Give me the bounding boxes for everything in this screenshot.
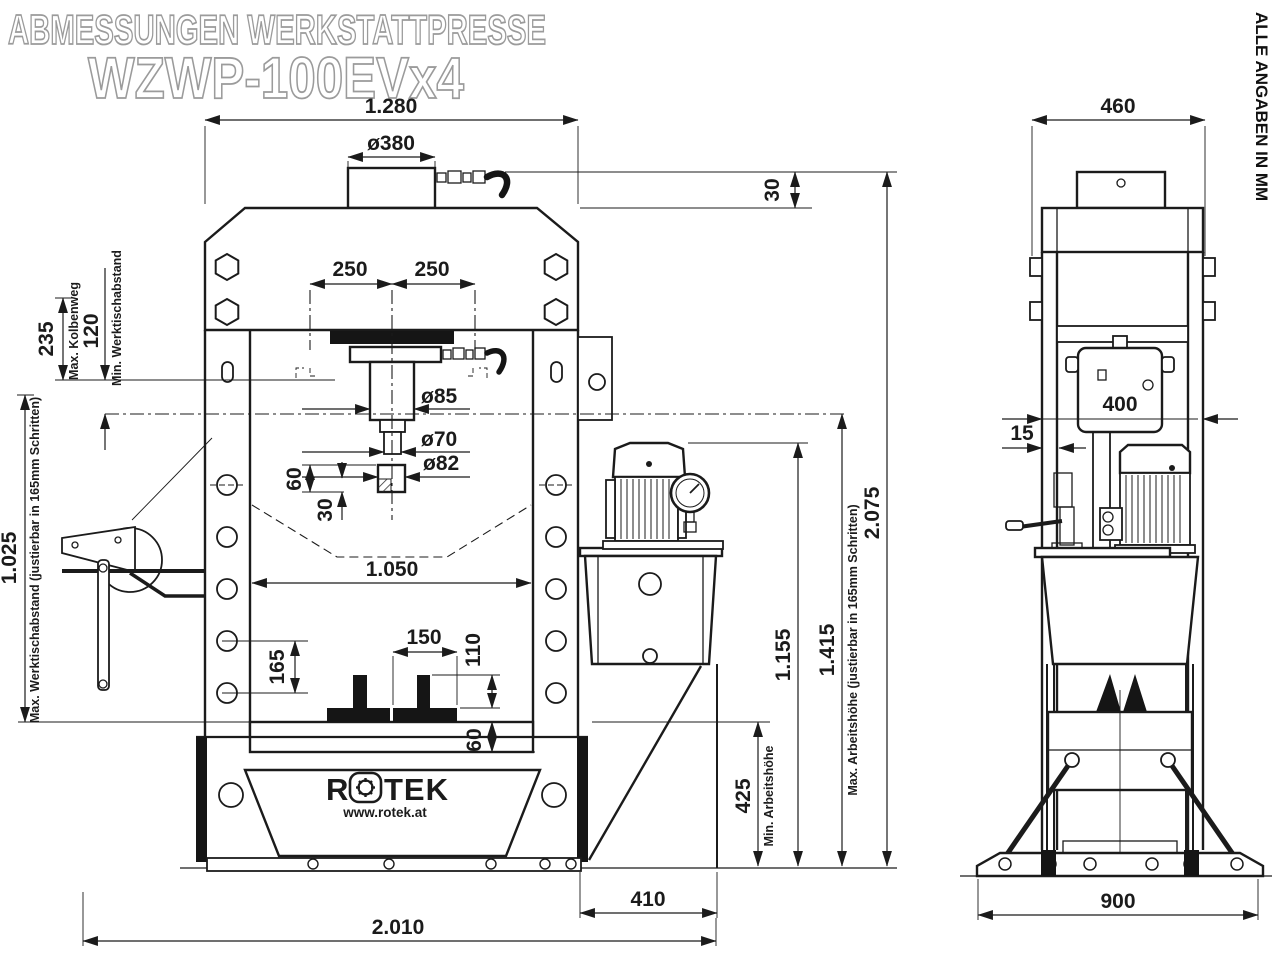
dim-center-right: 250 (414, 258, 449, 281)
dim-cylinder-unit-width: 400 (1102, 393, 1137, 416)
label-piston-stroke: Max. Kolbenweg (67, 282, 81, 380)
side-top-block (1077, 172, 1165, 208)
side-head-plate (1042, 208, 1203, 252)
dim-cylinder-dia: ø380 (367, 132, 415, 155)
flange-hose (443, 348, 504, 372)
dim-min-working-height: 425 (732, 778, 755, 813)
dim-piston-stroke: 235 (35, 321, 58, 356)
pump-stand (589, 664, 717, 868)
dim-min-table-distance: 120 (80, 313, 103, 348)
dim-piston-dia: ø85 (421, 385, 458, 408)
dim-adapter-hatch-height: 30 (314, 498, 337, 521)
v-blocks (327, 675, 457, 722)
dim-hose-clearance: 30 (761, 178, 784, 201)
slot-mark-left (296, 368, 318, 378)
dim-center-left: 250 (332, 258, 367, 281)
dim-max-working-height: 1.415 (816, 623, 839, 676)
dim-prism-spacing: 150 (406, 626, 441, 649)
dim-hole-pitch: 165 (266, 649, 289, 684)
roller-right (542, 783, 566, 807)
dim-plate-gap: 15 (1010, 422, 1034, 445)
crank-handle (98, 560, 109, 690)
roller-left (219, 783, 243, 807)
tank-hole-upper (639, 573, 661, 595)
side-mount-plate (1035, 548, 1170, 557)
dim-prism-height: 110 (462, 633, 485, 667)
table-winch (62, 438, 212, 690)
dim-side-base-width: 900 (1100, 890, 1135, 913)
top-cylinder (348, 168, 435, 208)
tank-hole-lower (643, 649, 657, 663)
side-tank (1042, 557, 1198, 664)
dim-pump-overhang: 410 (630, 888, 665, 911)
label-max-table-distance: Max. Werktischabstand (justierbar in 165… (28, 397, 42, 723)
side-valve-block (1100, 508, 1122, 540)
dim-total-width: 2.010 (372, 916, 425, 939)
bracket-hole (589, 374, 605, 390)
drawing-title: ABMESSUNGEN WERKSTATTPRESSE WZWP-100EVx4 (8, 6, 546, 111)
units-note: ALLE ANGABEN IN MM (1252, 12, 1271, 201)
technical-drawing-page: ABMESSUNGEN WERKSTATTPRESSE WZWP-100EVx4… (0, 0, 1280, 960)
logo-text-tek: TEK (384, 772, 449, 807)
dim-rod-dia: ø70 (421, 428, 457, 451)
top-hose (437, 171, 507, 195)
slot-mark-right (465, 368, 487, 378)
dim-inner-width: 1.050 (366, 558, 419, 581)
work-area-dashed (252, 505, 531, 557)
side-motor (1115, 445, 1195, 553)
dimension-drawing: ABMESSUNGEN WERKSTATTPRESSE WZWP-100EVx4… (0, 0, 1280, 960)
dim-side-top-width: 460 (1100, 95, 1135, 118)
side-hand-pump (1006, 473, 1082, 553)
dim-table-thickness: 60 (463, 728, 486, 751)
side-view (960, 172, 1272, 876)
hydraulic-pump (580, 443, 723, 664)
label-min-table-distance: Min. Werktischabstand (110, 250, 124, 386)
piston-assembly (296, 347, 504, 492)
side-v-blocks (1096, 674, 1147, 712)
dim-pump-top-height: 1.155 (772, 628, 795, 681)
dim-max-table-distance: 1.025 (0, 531, 21, 584)
head-beam (205, 208, 578, 330)
dim-adapter-height: 60 (283, 467, 306, 490)
logo-text-r: R (326, 772, 349, 807)
winch-cable (132, 438, 212, 520)
dim-total-height: 2.075 (861, 486, 884, 539)
base-side-plate-left (196, 737, 207, 862)
base-side-plate-right (577, 737, 588, 862)
label-max-working-height: Max. Arbeitshöhe (justierbar in 165mm Sc… (846, 504, 860, 795)
dim-overall-width: 1.280 (365, 95, 418, 118)
label-min-working-height: Min. Arbeitshöhe (762, 745, 776, 846)
cylinder-flange (350, 347, 441, 362)
logo-url: www.rotek.at (342, 805, 427, 820)
adapter-hatch (378, 479, 391, 492)
dim-adapter-dia: ø82 (423, 452, 459, 475)
